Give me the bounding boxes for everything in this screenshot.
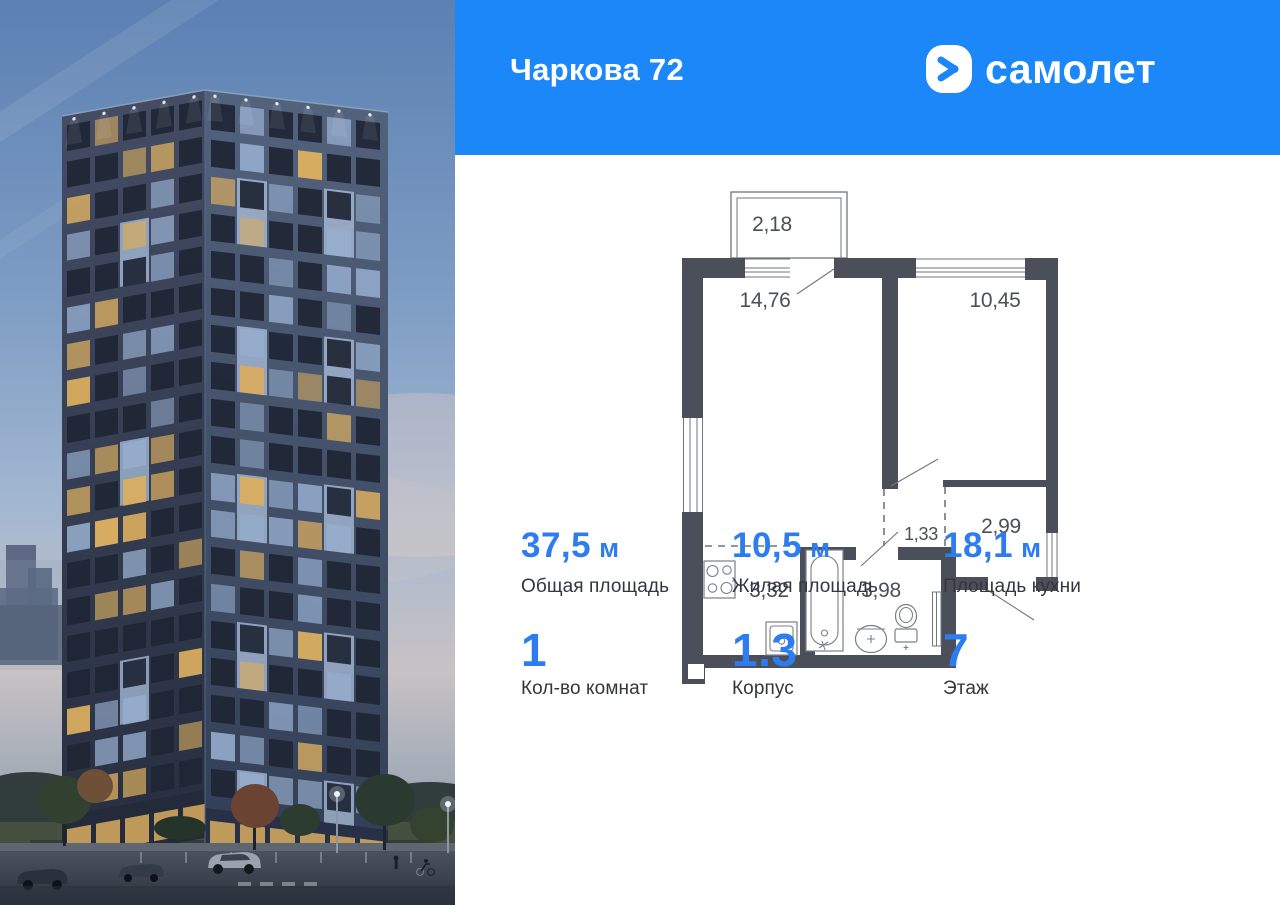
brand-logo: самолет [926,45,1156,93]
walls [682,258,1058,684]
unit: м [810,533,830,563]
stats-row-areas: 37,5м Общая площадь 10,5м Жилая площадь … [521,528,1154,598]
header-bar: Чаркова 72 самолет [455,0,1280,155]
room-area-label: 10,45 [969,289,1020,312]
unit: м [1021,533,1041,563]
stat-kitchen-area: 18,1м Площадь кухни [943,528,1154,598]
stat-label: Жилая площадь [732,576,943,598]
building-photo [0,0,455,905]
stat-label: Площадь кухни [943,576,1154,598]
stats-row-info: 1 Кол-во комнат 1.3 Корпус 7 Этаж [521,627,1154,700]
project-title: Чаркова 72 [510,52,684,88]
stat-rooms-count: 1 Кол-во комнат [521,627,732,700]
stat-label: Общая площадь [521,576,732,598]
listing-card: Чаркова 72 самолет [0,0,1280,905]
stat-value: 7 [943,627,1154,674]
stat-total-area: 37,5м Общая площадь [521,528,732,598]
stat-living-area: 10,5м Жилая площадь [732,528,943,598]
stat-value: 18,1м [943,528,1154,566]
stat-value: 10,5м [732,528,943,566]
stat-building: 1.3 Корпус [732,627,943,700]
stat-floor: 7 Этаж [943,627,1154,700]
stat-value: 1.3 [732,627,943,674]
room-area-label: 2,18 [752,213,792,236]
facade-right [205,90,388,876]
stat-value: 1 [521,627,732,674]
stat-label: Этаж [943,678,1154,700]
facade-left [62,90,207,864]
unit: м [599,533,619,563]
stat-label: Кол-во комнат [521,678,732,700]
stat-label: Корпус [732,678,943,700]
content-panel: Чаркова 72 самолет [455,0,1280,905]
building-photo-art [0,0,455,905]
samolet-arrow-icon [926,45,972,93]
stat-value: 37,5м [521,528,732,566]
room-area-label: 14,76 [739,289,790,312]
brand-name: самолет [985,45,1156,93]
sidewalk [0,843,455,852]
